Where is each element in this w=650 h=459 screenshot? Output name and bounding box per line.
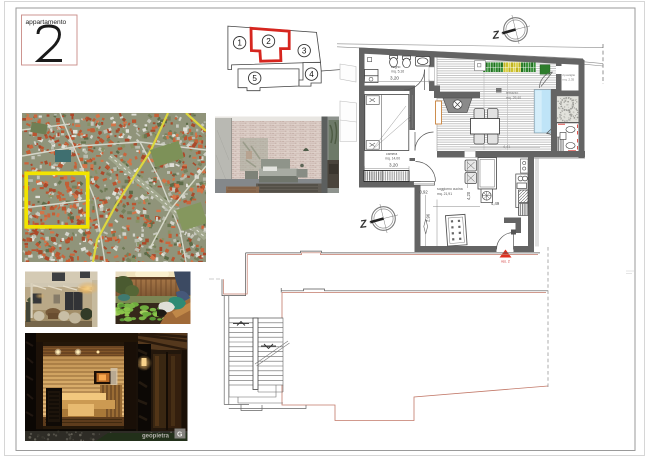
svg-text:3: 3 xyxy=(302,46,307,55)
svg-text:mq. 21,91: mq. 21,91 xyxy=(437,192,452,196)
svg-text:terrazzo: terrazzo xyxy=(506,91,518,95)
svg-text:3,20: 3,20 xyxy=(389,163,398,168)
svg-text:G: G xyxy=(177,432,183,439)
svg-text:4,49: 4,49 xyxy=(491,201,500,206)
svg-text:4: 4 xyxy=(309,70,314,79)
svg-text:4,41: 4,41 xyxy=(503,145,510,149)
svg-text:camera: camera xyxy=(386,152,397,156)
svg-text:4,37: 4,37 xyxy=(408,115,412,122)
svg-text:5: 5 xyxy=(252,74,257,83)
svg-text:0,92: 0,92 xyxy=(420,190,429,195)
svg-text:bagno: bagno xyxy=(391,65,401,69)
svg-text:4,20: 4,20 xyxy=(466,191,471,200)
svg-text:ripostiglio: ripostiglio xyxy=(563,73,576,77)
svg-text:res. 2: res. 2 xyxy=(501,260,510,264)
svg-text:mq. 14,00: mq. 14,00 xyxy=(385,157,400,161)
svg-text:mq. 5,16: mq. 5,16 xyxy=(391,70,404,74)
svg-text:geopietra: geopietra xyxy=(142,434,170,440)
svg-text:1: 1 xyxy=(237,39,242,48)
svg-text:soggiorno cucina: soggiorno cucina xyxy=(437,187,463,191)
svg-text:2: 2 xyxy=(266,37,271,46)
svg-text:3,20: 3,20 xyxy=(390,76,399,81)
svg-text:mq. 2,35: mq. 2,35 xyxy=(563,78,575,82)
svg-text:mq. 29,40: mq. 29,40 xyxy=(506,96,521,100)
